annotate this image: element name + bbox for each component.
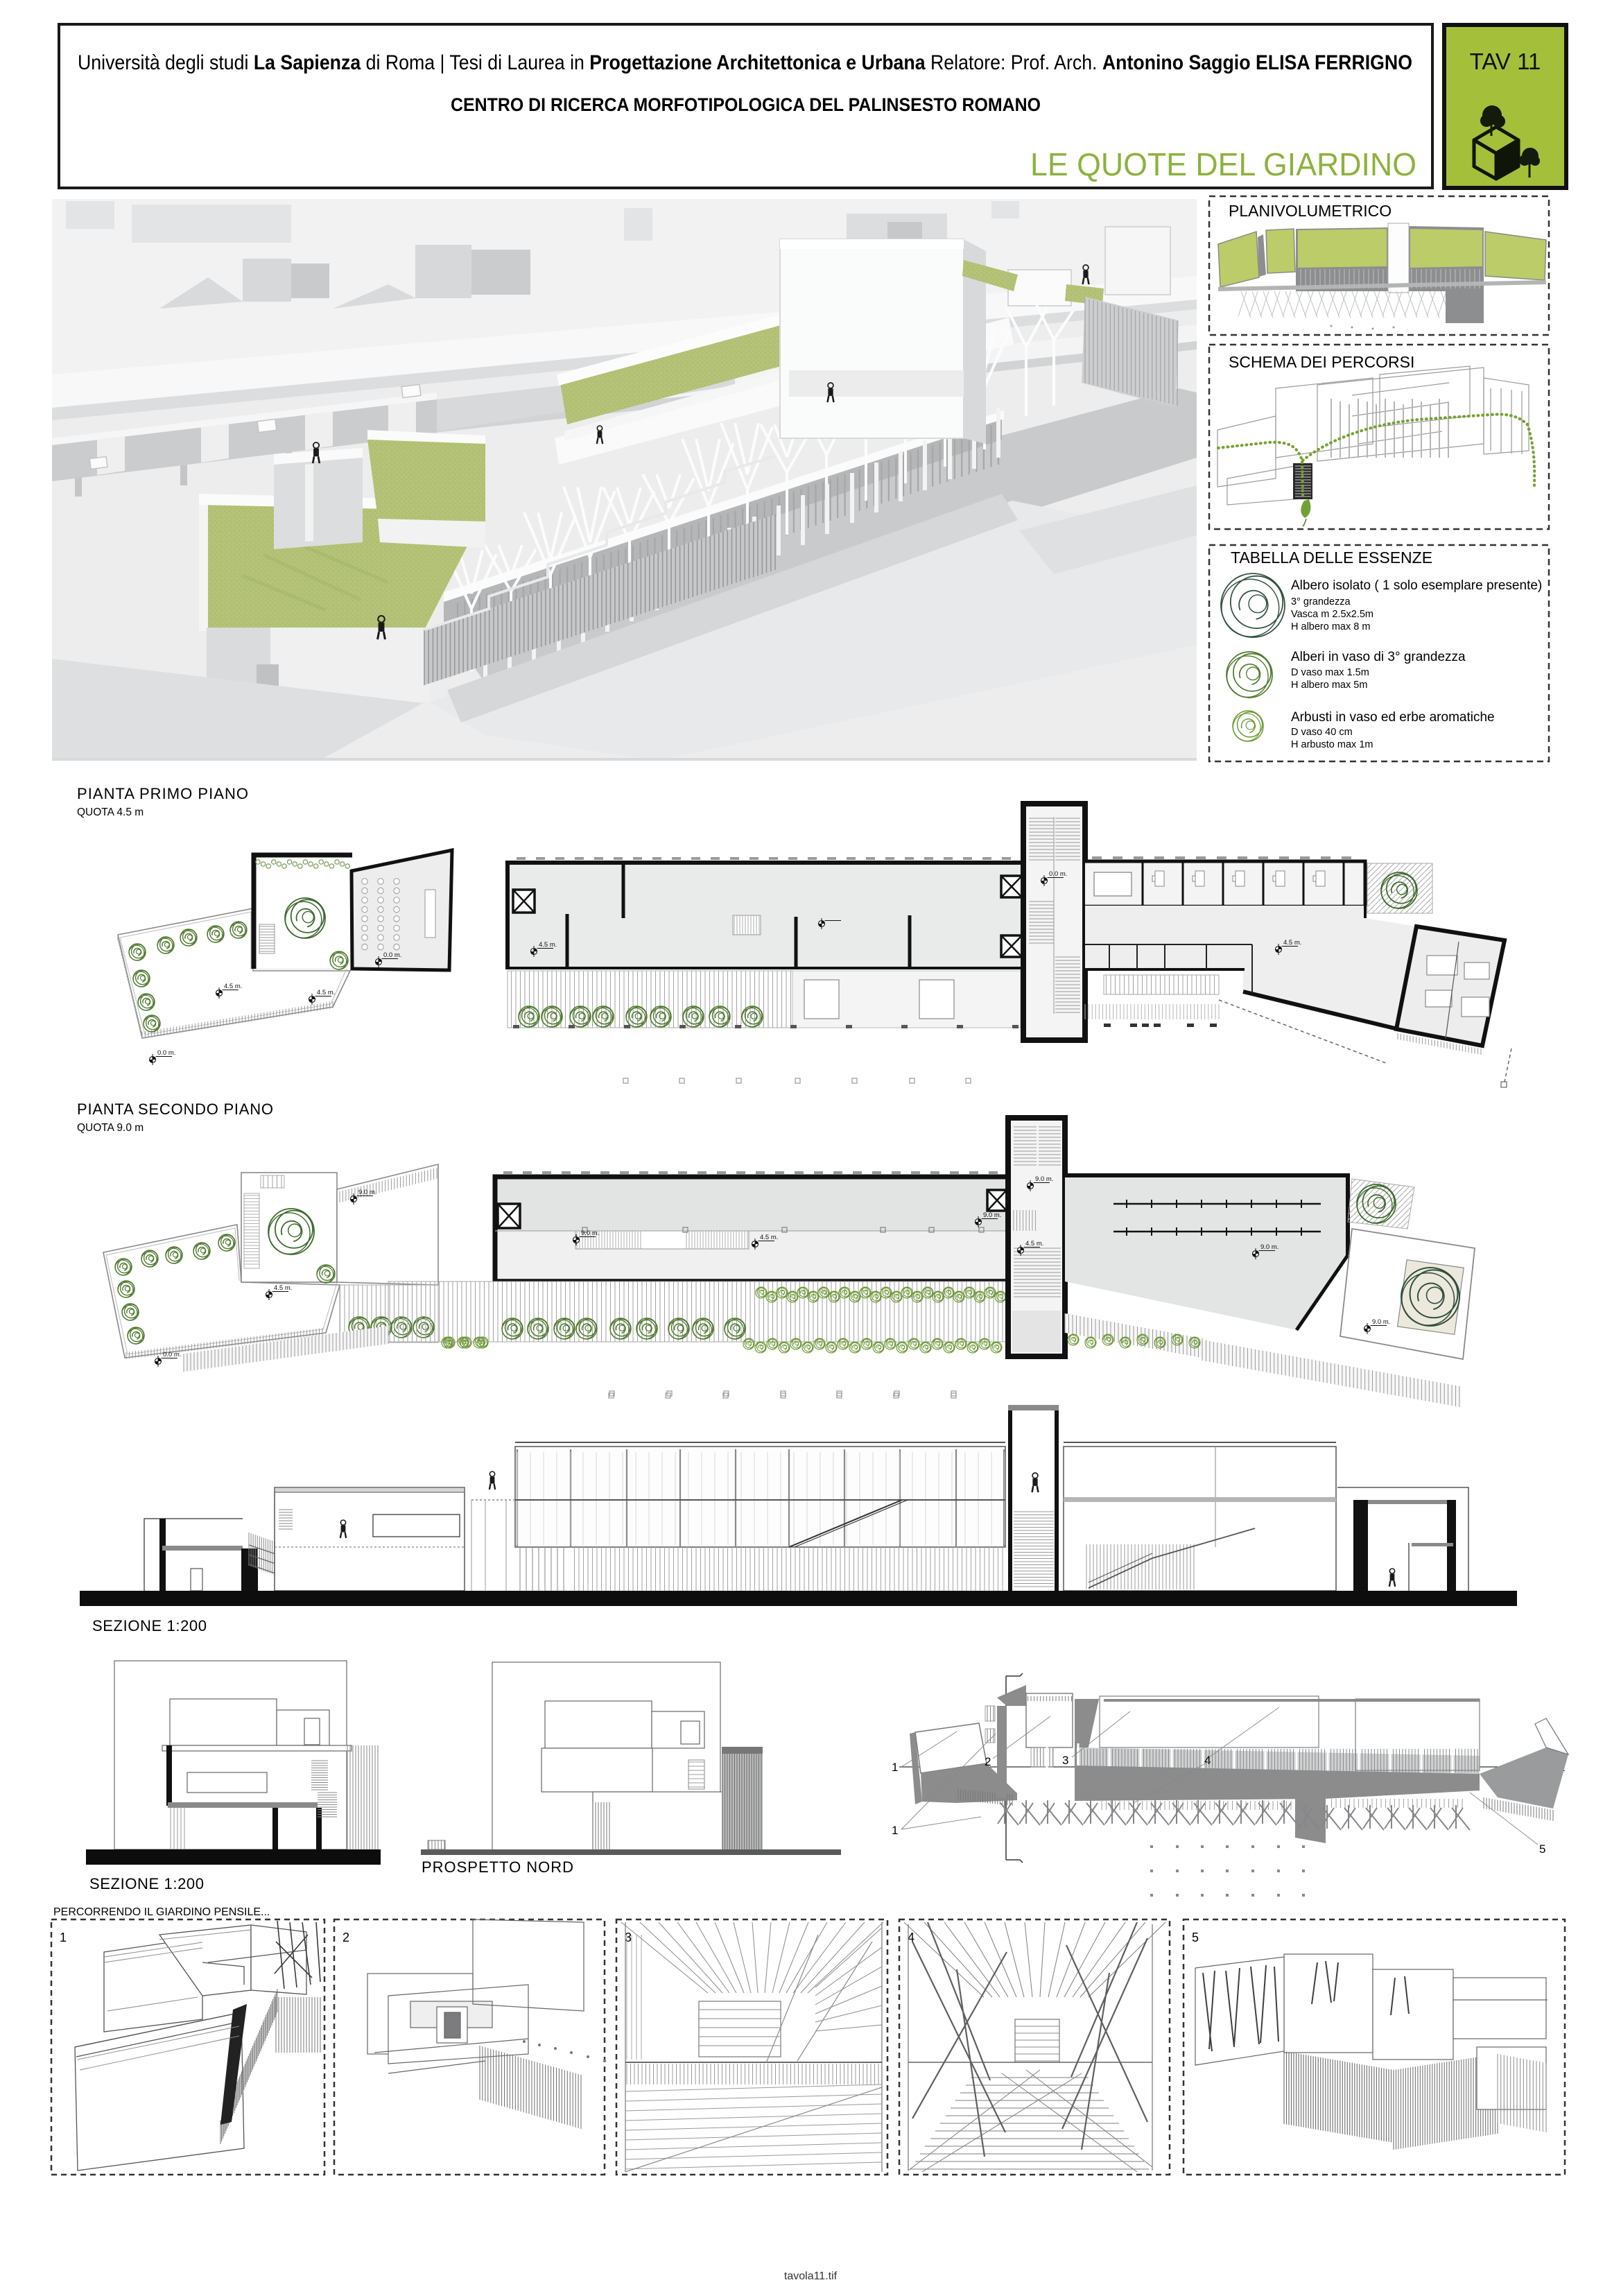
- svg-text:PERCORRENDO IL GIARDINO PENSIL: PERCORRENDO IL GIARDINO PENSILE...: [53, 1906, 270, 1918]
- svg-text:PIANTA PRIMO PIANO: PIANTA PRIMO PIANO: [77, 785, 248, 802]
- svg-text:TAV 11: TAV 11: [1470, 49, 1541, 74]
- svg-text:D vaso 40 cm: D vaso 40 cm: [1291, 727, 1353, 738]
- svg-text:QUOTA 9.0 m: QUOTA 9.0 m: [77, 1122, 144, 1134]
- svg-text:H arbusto max 1m: H arbusto max 1m: [1291, 739, 1373, 750]
- svg-text:H albero max 5m: H albero max 5m: [1291, 680, 1367, 691]
- svg-text:0.0 m.: 0.0 m.: [383, 951, 401, 959]
- svg-text:tavola11.tif: tavola11.tif: [784, 2270, 838, 2282]
- svg-text:1: 1: [892, 1761, 898, 1774]
- svg-text:TABELLA DELLE ESSENZE: TABELLA DELLE ESSENZE: [1231, 549, 1432, 567]
- svg-text:2: 2: [343, 1931, 349, 1944]
- svg-text:D vaso max 1.5m: D vaso max 1.5m: [1291, 667, 1369, 678]
- svg-text:PIANTA SECONDO PIANO: PIANTA SECONDO PIANO: [77, 1100, 273, 1118]
- svg-text:Albero isolato ( 1 solo esempl: Albero isolato ( 1 solo esemplare presen…: [1291, 578, 1542, 593]
- svg-text:Università degli studi La Sapi: Università degli studi La Sapienza di Ro…: [78, 51, 1412, 74]
- svg-text:9.0 m.: 9.0 m.: [1260, 1243, 1278, 1251]
- svg-text:SEZIONE 1:200: SEZIONE 1:200: [89, 1875, 204, 1892]
- svg-text:5: 5: [1192, 1931, 1199, 1944]
- svg-text:CENTRO DI RICERCA MORFOTIPOLOG: CENTRO DI RICERCA MORFOTIPOLOGICA DEL PA…: [451, 94, 1041, 115]
- svg-text:4.5 m.: 4.5 m.: [539, 941, 557, 949]
- svg-text:4: 4: [1204, 1754, 1211, 1767]
- svg-text:0.0 m.: 0.0 m.: [157, 1049, 175, 1057]
- svg-text:9.0 m.: 9.0 m.: [983, 1211, 1001, 1219]
- svg-text:4.5 m.: 4.5 m.: [760, 1234, 778, 1241]
- svg-text:3° grandezza: 3° grandezza: [1291, 596, 1351, 607]
- svg-text:Alberi in vaso di 3° grandezza: Alberi in vaso di 3° grandezza: [1291, 650, 1466, 664]
- svg-text:SEZIONE 1:200: SEZIONE 1:200: [92, 1617, 207, 1634]
- svg-text:4.5 m.: 4.5 m.: [1283, 939, 1301, 947]
- svg-text:9.0 m.: 9.0 m.: [1035, 1175, 1053, 1183]
- svg-text:0.0 m.: 0.0 m.: [1049, 870, 1067, 878]
- svg-text:4.5 m.: 4.5 m.: [224, 983, 242, 990]
- svg-text:0.0 m.: 0.0 m.: [163, 1351, 181, 1358]
- svg-text:PLANIVOLUMETRICO: PLANIVOLUMETRICO: [1229, 202, 1392, 220]
- svg-text:4.5 m.: 4.5 m.: [1025, 1240, 1043, 1248]
- svg-text:PROSPETTO NORD: PROSPETTO NORD: [422, 1858, 573, 1876]
- svg-text:4.5 m.: 4.5 m.: [317, 989, 335, 996]
- svg-text:1: 1: [892, 1824, 898, 1837]
- svg-text:2: 2: [985, 1755, 991, 1768]
- svg-text:Arbusti in vaso ed erbe aromat: Arbusti in vaso ed erbe aromatiche: [1291, 710, 1495, 725]
- svg-text:QUOTA 4.5 m: QUOTA 4.5 m: [77, 806, 144, 818]
- svg-text:3: 3: [1062, 1754, 1068, 1767]
- svg-text:9.0 m.: 9.0 m.: [581, 1229, 599, 1237]
- svg-text:9.0 m.: 9.0 m.: [1372, 1318, 1390, 1326]
- svg-text:SCHEMA DEI PERCORSI: SCHEMA DEI PERCORSI: [1229, 353, 1414, 371]
- svg-text:H albero max 8 m: H albero max 8 m: [1291, 621, 1370, 632]
- svg-text:1: 1: [60, 1931, 67, 1944]
- svg-text:4.5 m.: 4.5 m.: [274, 1284, 292, 1292]
- svg-text:LE QUOTE DEL GIARDINO: LE QUOTE DEL GIARDINO: [1030, 146, 1416, 182]
- svg-text:5: 5: [1539, 1842, 1545, 1856]
- svg-text:Vasca m 2.5x2.5m: Vasca m 2.5x2.5m: [1291, 609, 1373, 620]
- svg-text:9.0 m.: 9.0 m.: [358, 1189, 376, 1196]
